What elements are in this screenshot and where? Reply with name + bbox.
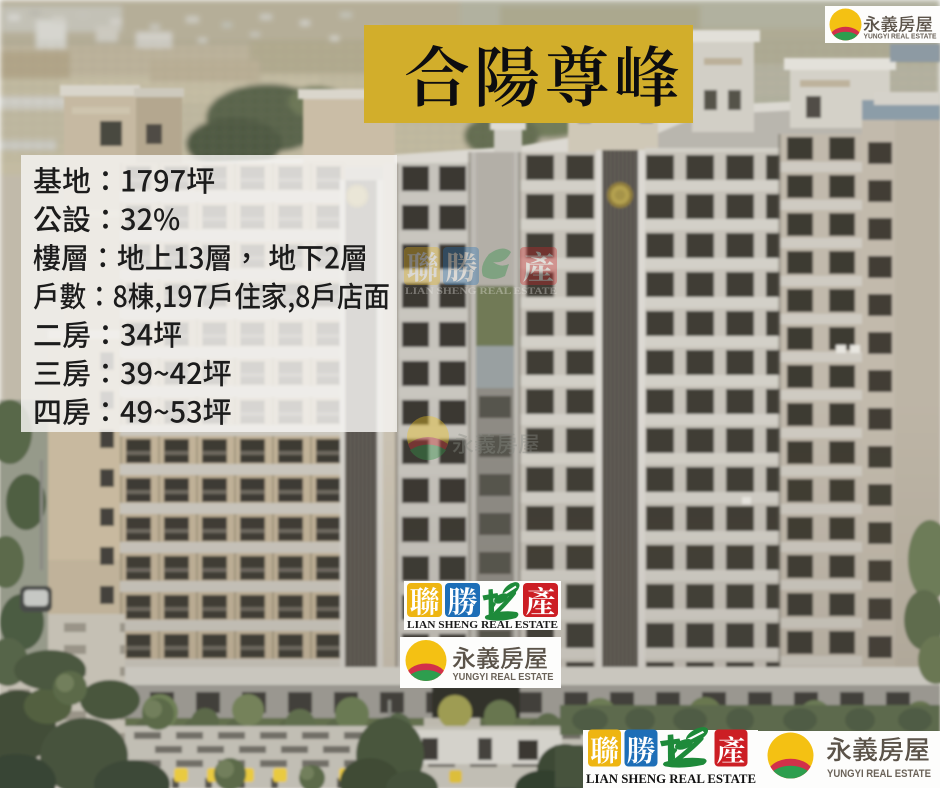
svg-text:YUNGYI REAL ESTATE: YUNGYI REAL ESTATE	[453, 672, 554, 683]
svg-text:YUNGYI REAL ESTATE: YUNGYI REAL ESTATE	[864, 32, 937, 41]
svg-text:YUNGYI REAL ESTATE: YUNGYI REAL ESTATE	[827, 768, 931, 780]
svg-text:LIAN SHENG REAL ESTATE: LIAN SHENG REAL ESTATE	[586, 772, 756, 786]
svg-text:LIAN SHENG REAL ESTATE: LIAN SHENG REAL ESTATE	[407, 620, 558, 631]
svg-text:LIAN SHENG REAL ESTATE: LIAN SHENG REAL ESTATE	[405, 286, 557, 296]
